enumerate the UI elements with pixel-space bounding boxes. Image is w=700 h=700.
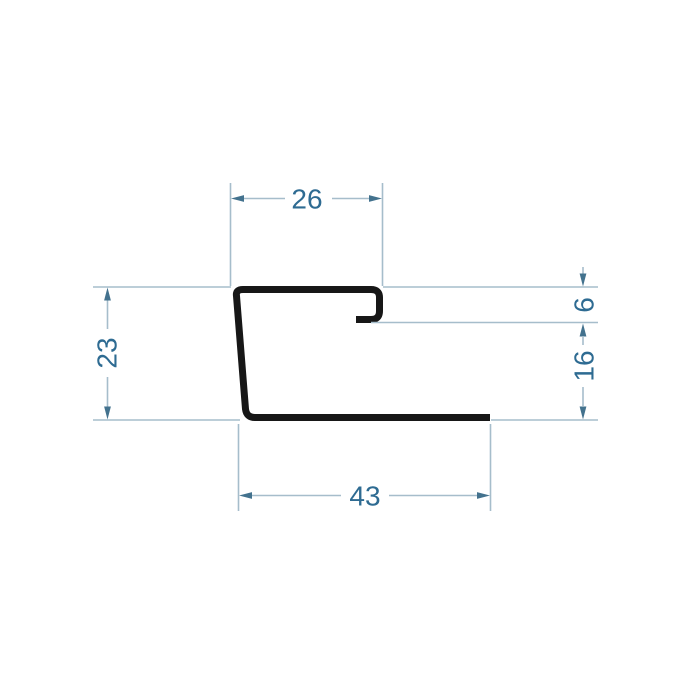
arrow-right-icon	[369, 195, 382, 202]
arrow-down-icon	[580, 407, 587, 420]
dimension-label-left: 23	[92, 337, 123, 368]
dimension-label-bottom: 43	[349, 481, 380, 512]
arrow-right-icon	[477, 492, 490, 499]
dimension-label-top: 26	[291, 184, 322, 215]
arrow-up-icon	[580, 324, 587, 337]
dimension-label-right: 16	[569, 350, 600, 381]
dimension-left-height: 23	[92, 287, 241, 420]
arrow-up-icon	[104, 288, 111, 301]
profile	[236, 290, 490, 418]
drawing-canvas: 26 23 6 16	[0, 0, 700, 700]
dimension-bottom-width: 43	[239, 424, 491, 512]
arrow-left-icon	[231, 195, 244, 202]
arrow-left-icon	[239, 492, 252, 499]
arrow-down-icon	[104, 407, 111, 420]
dimension-right-height: 16	[491, 324, 600, 421]
profile-dimension-drawing: 26 23 6 16	[0, 0, 700, 700]
dimension-top-width: 26	[231, 183, 383, 286]
dimension-label-lip: 6	[569, 297, 600, 313]
dimension-lip-depth: 6	[371, 267, 600, 323]
profile-outline	[236, 290, 490, 418]
arrow-down-icon	[580, 274, 587, 287]
